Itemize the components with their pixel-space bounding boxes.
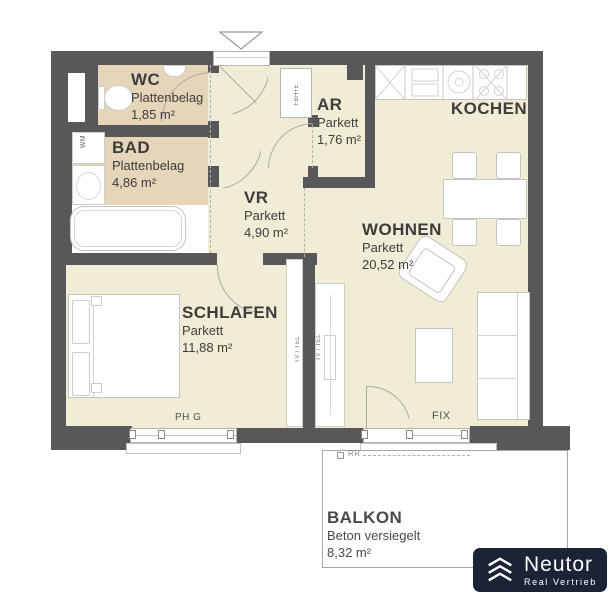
room-floor: Plattenbelag — [112, 159, 184, 174]
window-post — [129, 430, 136, 439]
window-post — [461, 430, 468, 439]
sofa-cushion-line — [478, 335, 517, 336]
wall-tv-partition — [303, 259, 315, 428]
bed — [68, 294, 180, 398]
room-name: WOHNEN — [362, 220, 442, 239]
coffee-table — [415, 328, 453, 383]
window-post — [227, 430, 234, 439]
wall-shaft — [347, 65, 363, 80]
room-name: BALKON — [327, 508, 420, 527]
window-post — [361, 430, 368, 439]
room-label-bad: BAD Plattenbelag 4,86 m² — [112, 138, 184, 190]
bed-head-line — [93, 295, 94, 397]
room-label-vr: VR Parkett 4,90 m² — [244, 188, 288, 240]
room-label-schlafen: SCHLAFEN Parkett 11,88 m² — [182, 303, 278, 355]
sofa-cushion-line — [478, 378, 517, 379]
bed-pillow — [72, 352, 90, 396]
sofa — [477, 292, 530, 420]
wall — [51, 426, 132, 450]
opening-line — [304, 188, 305, 257]
brand-tagline: Real Vertrieb — [524, 577, 597, 587]
shaft-niche — [68, 73, 85, 122]
room-label-ar: AR Parkett 1,76 m² — [317, 95, 361, 147]
balcony-door-leaf — [366, 386, 367, 428]
room-label-wohnen: WOHNEN Parkett 20,52 m² — [362, 220, 442, 272]
room-name: WC — [131, 70, 203, 89]
wall — [51, 51, 66, 450]
door-arc-balcony — [367, 386, 409, 428]
room-area: 8,32 m² — [327, 546, 420, 561]
chevrons-icon — [485, 555, 515, 585]
room-name: VR — [244, 188, 288, 207]
tv-tel-label: TV / TEL — [316, 334, 322, 361]
balcony-threshold — [363, 455, 470, 456]
brand-text: Neutor Real Vertrieb — [524, 554, 597, 587]
room-area: 1,76 m² — [317, 133, 361, 148]
kitchen-counter — [375, 65, 527, 100]
wall — [268, 51, 543, 65]
room-name: BAD — [112, 138, 184, 157]
dining-chair — [452, 219, 477, 246]
wall — [51, 253, 217, 265]
window-line — [131, 435, 236, 436]
room-area: 11,88 m² — [182, 341, 278, 356]
tv-sideboard-line — [330, 295, 331, 415]
washing-machine-slot — [72, 132, 105, 164]
fbhe-label: FBH+E — [294, 84, 300, 106]
entrance-marker-icon — [219, 31, 263, 51]
dining-chair — [496, 152, 521, 179]
room-name: AR — [317, 95, 361, 114]
window-line — [412, 435, 468, 436]
sofa-backrest-line — [517, 293, 518, 419]
door-arc-ar — [268, 123, 313, 168]
room-area: 4,90 m² — [244, 226, 288, 241]
wall — [237, 428, 363, 443]
window-sill — [126, 443, 241, 454]
room-label-wc: WC Plattenbelag 1,85 m² — [131, 70, 203, 122]
room-floor: Parkett — [182, 324, 278, 339]
rr-label: RR — [348, 449, 361, 458]
washbasin-bowl — [76, 172, 101, 200]
balcony-door-fix-window — [363, 428, 470, 443]
brand-name: Neutor — [524, 554, 597, 575]
window-schlafen — [130, 428, 237, 443]
wm-label: WM — [80, 135, 87, 148]
wall — [51, 51, 215, 65]
room-area: 20,52 m² — [362, 258, 442, 273]
room-area: 1,85 m² — [131, 108, 203, 123]
entrance-door-frame-line — [215, 57, 268, 58]
brand-logo: Neutor Real Vertrieb — [473, 548, 607, 592]
room-label-balkon: BALKON Beton versiegelt 8,32 m² — [327, 508, 420, 560]
toilet-bowl — [104, 85, 133, 111]
room-area: 4,86 m² — [112, 176, 184, 191]
window-post — [406, 430, 413, 439]
bed-corner — [91, 383, 102, 393]
room-floor: Parkett — [362, 241, 442, 256]
room-label-kochen: KOCHEN — [449, 99, 527, 118]
room-floor: Parkett — [317, 116, 361, 131]
room-floor: Parkett — [244, 209, 288, 224]
bed-corner — [91, 296, 102, 306]
room-name: KOCHEN — [449, 99, 527, 118]
room-name: SCHLAFEN — [182, 303, 278, 322]
bathtub-inner — [74, 210, 182, 247]
door-arc-entrance — [219, 65, 268, 114]
rr-marker — [337, 452, 344, 459]
room-floor: Beton versiegelt — [327, 529, 420, 544]
wall — [365, 65, 375, 188]
room-floor: Plattenbelag — [131, 91, 203, 106]
wall — [528, 51, 543, 443]
tv-tel-label: TV / TEL — [295, 336, 301, 363]
entrance-door-frame — [213, 51, 270, 66]
ph-g-label: PH G — [175, 412, 201, 423]
dining-table — [443, 179, 527, 219]
window-post — [158, 430, 165, 439]
dining-chair — [452, 152, 477, 179]
door-arc-bad — [211, 138, 261, 188]
dining-chair — [496, 219, 521, 246]
floor-plan: WC Plattenbelag 1,85 m² BAD Plattenbelag… — [0, 0, 614, 600]
fix-label: FIX — [432, 410, 451, 422]
bed-pillow — [72, 300, 90, 344]
